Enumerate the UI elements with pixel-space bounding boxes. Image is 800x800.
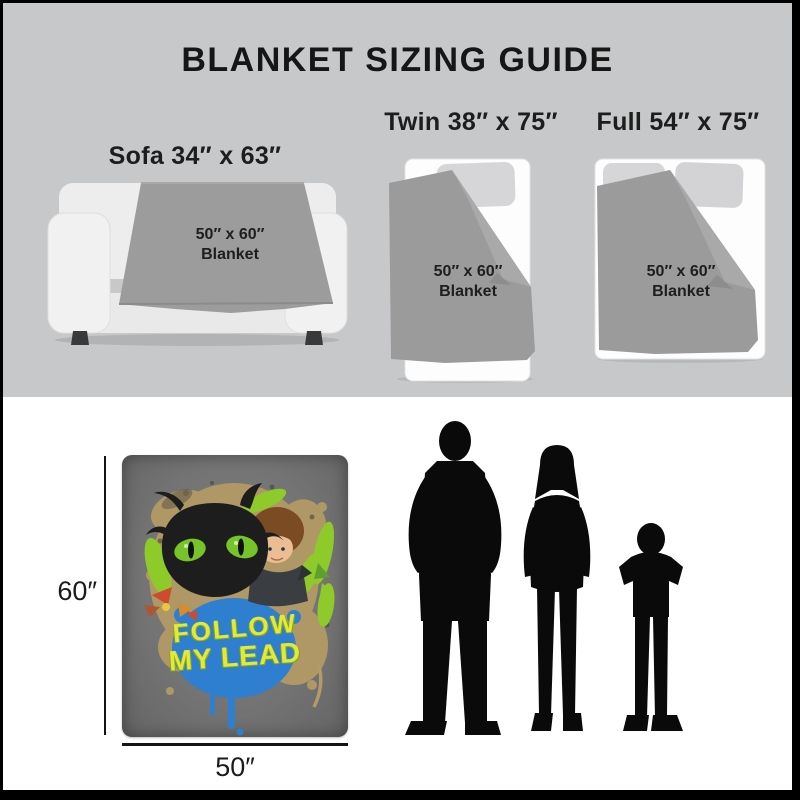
infographic-canvas: BLANKET SIZING GUIDE Sofa 34″ x 63″ Twin… [3, 3, 792, 790]
sofa-shadow [55, 334, 339, 346]
full-size-label: Full 54″ x 75″ [578, 108, 778, 137]
sofa-blanket-word: Blanket [160, 245, 300, 265]
page-title: BLANKET SIZING GUIDE [3, 41, 792, 80]
sofa-left-armrest [48, 213, 110, 333]
sofa-right-foot [305, 331, 323, 345]
blanket-artwork [122, 455, 348, 737]
child-silhouette [619, 523, 683, 731]
sofa-left-foot [71, 331, 89, 345]
adult-woman-silhouette [524, 445, 591, 731]
adult-man-silhouette [405, 421, 501, 735]
full-blanket-word: Blanket [618, 282, 744, 302]
blanket-edge-shade [119, 303, 333, 304]
sofa-blanket-text: 50″ x 60″ Blanket [160, 225, 300, 265]
width-dimension-label: 50″ [185, 752, 285, 783]
product-blanket: FOLLOW MY LEAD [122, 455, 348, 737]
height-dimension-label: 60″ [47, 576, 97, 607]
height-dimension-line [104, 456, 106, 735]
sofa-blanket-size: 50″ x 60″ [160, 225, 300, 245]
sofa-size-label: Sofa 34″ x 63″ [95, 142, 295, 171]
twin-blanket-text: 50″ x 60″ Blanket [405, 262, 531, 302]
full-blanket-text: 50″ x 60″ Blanket [618, 262, 744, 302]
twin-size-label: Twin 38″ x 75″ [371, 108, 571, 137]
full-bed-illustration [585, 155, 770, 365]
width-dimension-line [122, 743, 348, 746]
twin-blanket-size: 50″ x 60″ [405, 262, 531, 282]
scale-figures [385, 415, 705, 740]
full-blanket-size: 50″ x 60″ [618, 262, 744, 282]
twin-blanket-word: Blanket [405, 282, 531, 302]
